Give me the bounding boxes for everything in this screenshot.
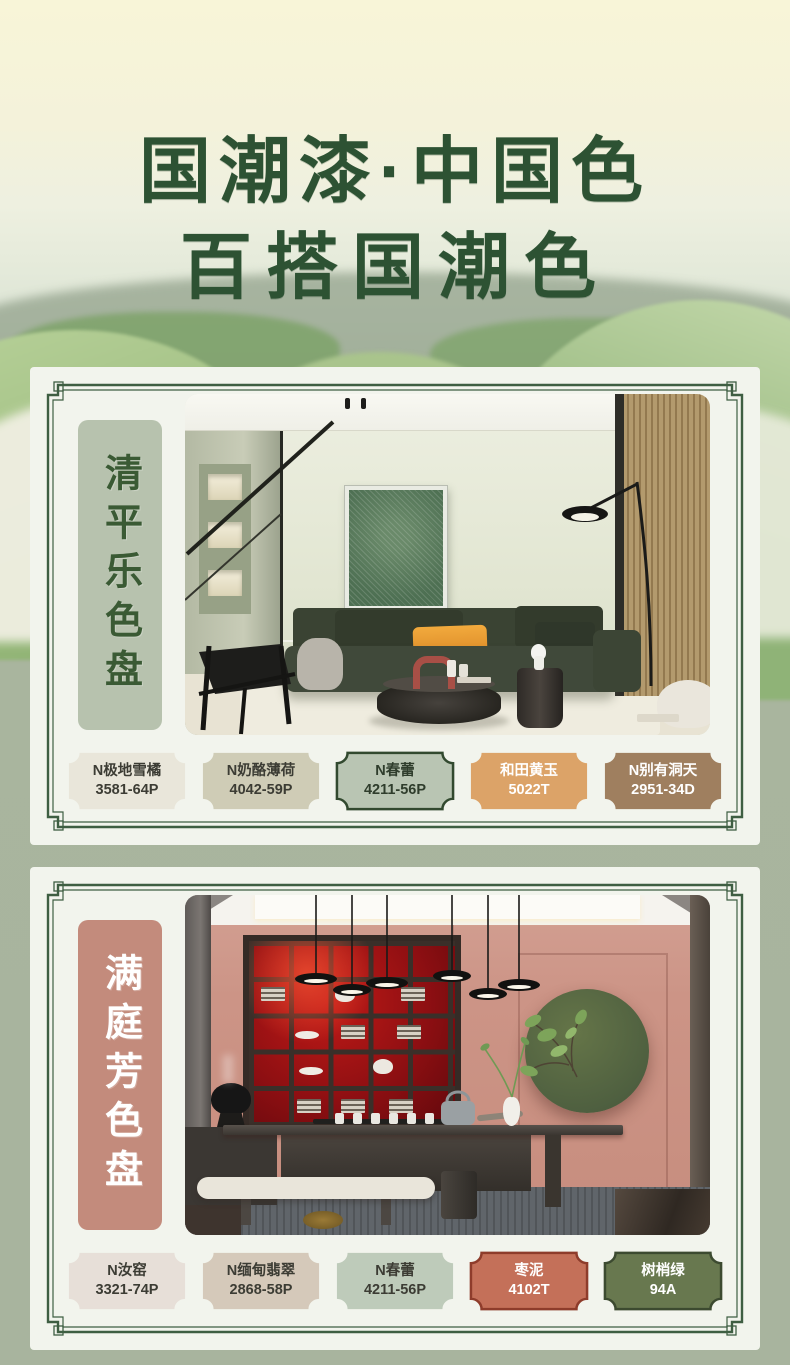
palette-banner-mantingfang: 满庭芳色盘 xyxy=(78,920,162,1230)
swatch-label: 树梢绿 94A xyxy=(603,1251,723,1311)
swatch-label: 枣泥 4102T xyxy=(469,1251,589,1311)
paint-swatch: N奶酪薄荷 4042-59P xyxy=(201,751,321,811)
paint-swatch: N汝窑 3321-74P xyxy=(67,1251,187,1311)
palette-banner-label: 清平乐色盘 xyxy=(93,453,148,698)
tea-room-photo xyxy=(185,895,710,1235)
poster-title-line2: 百搭国潮色 xyxy=(0,208,790,313)
palette-card-mantingfang: 满庭芳色盘 xyxy=(30,867,760,1350)
swatch-label: N春蕾 4211-56P xyxy=(335,751,455,811)
pendant-and-plant-overlay xyxy=(185,895,710,1235)
swatch-label: N春蕾 4211-56P xyxy=(335,1251,455,1311)
paint-swatch: N极地雪橘 3581-64P xyxy=(67,751,187,811)
swatch-label: 和田黄玉 5022T xyxy=(469,751,589,811)
swatch-label: N别有洞天 2951-34D xyxy=(603,751,723,811)
poster: 国潮漆·中国色 百搭国潮色 清平乐色盘 xyxy=(0,0,790,1365)
paint-swatch: N春蕾 4211-56P xyxy=(335,751,455,811)
swatch-label: N缅甸翡翠 2868-58P xyxy=(201,1251,321,1311)
swatch-label: N汝窑 3321-74P xyxy=(67,1251,187,1311)
poster-title-line1: 国潮漆·中国色 xyxy=(0,112,790,217)
paint-swatch: 树梢绿 94A xyxy=(603,1251,723,1311)
living-room-photo xyxy=(185,394,710,735)
palette-banner-label: 满庭芳色盘 xyxy=(93,953,148,1198)
paint-swatch: N缅甸翡翠 2868-58P xyxy=(201,1251,321,1311)
paint-swatch: N春蕾 4211-56P xyxy=(335,1251,455,1311)
line-art-overlay xyxy=(185,394,710,735)
paint-swatch: 和田黄玉 5022T xyxy=(469,751,589,811)
swatch-label: N极地雪橘 3581-64P xyxy=(67,751,187,811)
paint-swatch: N别有洞天 2951-34D xyxy=(603,751,723,811)
paint-swatch: 枣泥 4102T xyxy=(469,1251,589,1311)
swatch-label: N奶酪薄荷 4042-59P xyxy=(201,751,321,811)
palette-banner-qingpingle: 清平乐色盘 xyxy=(78,420,162,730)
palette-card-qingpingle: 清平乐色盘 xyxy=(30,367,760,845)
